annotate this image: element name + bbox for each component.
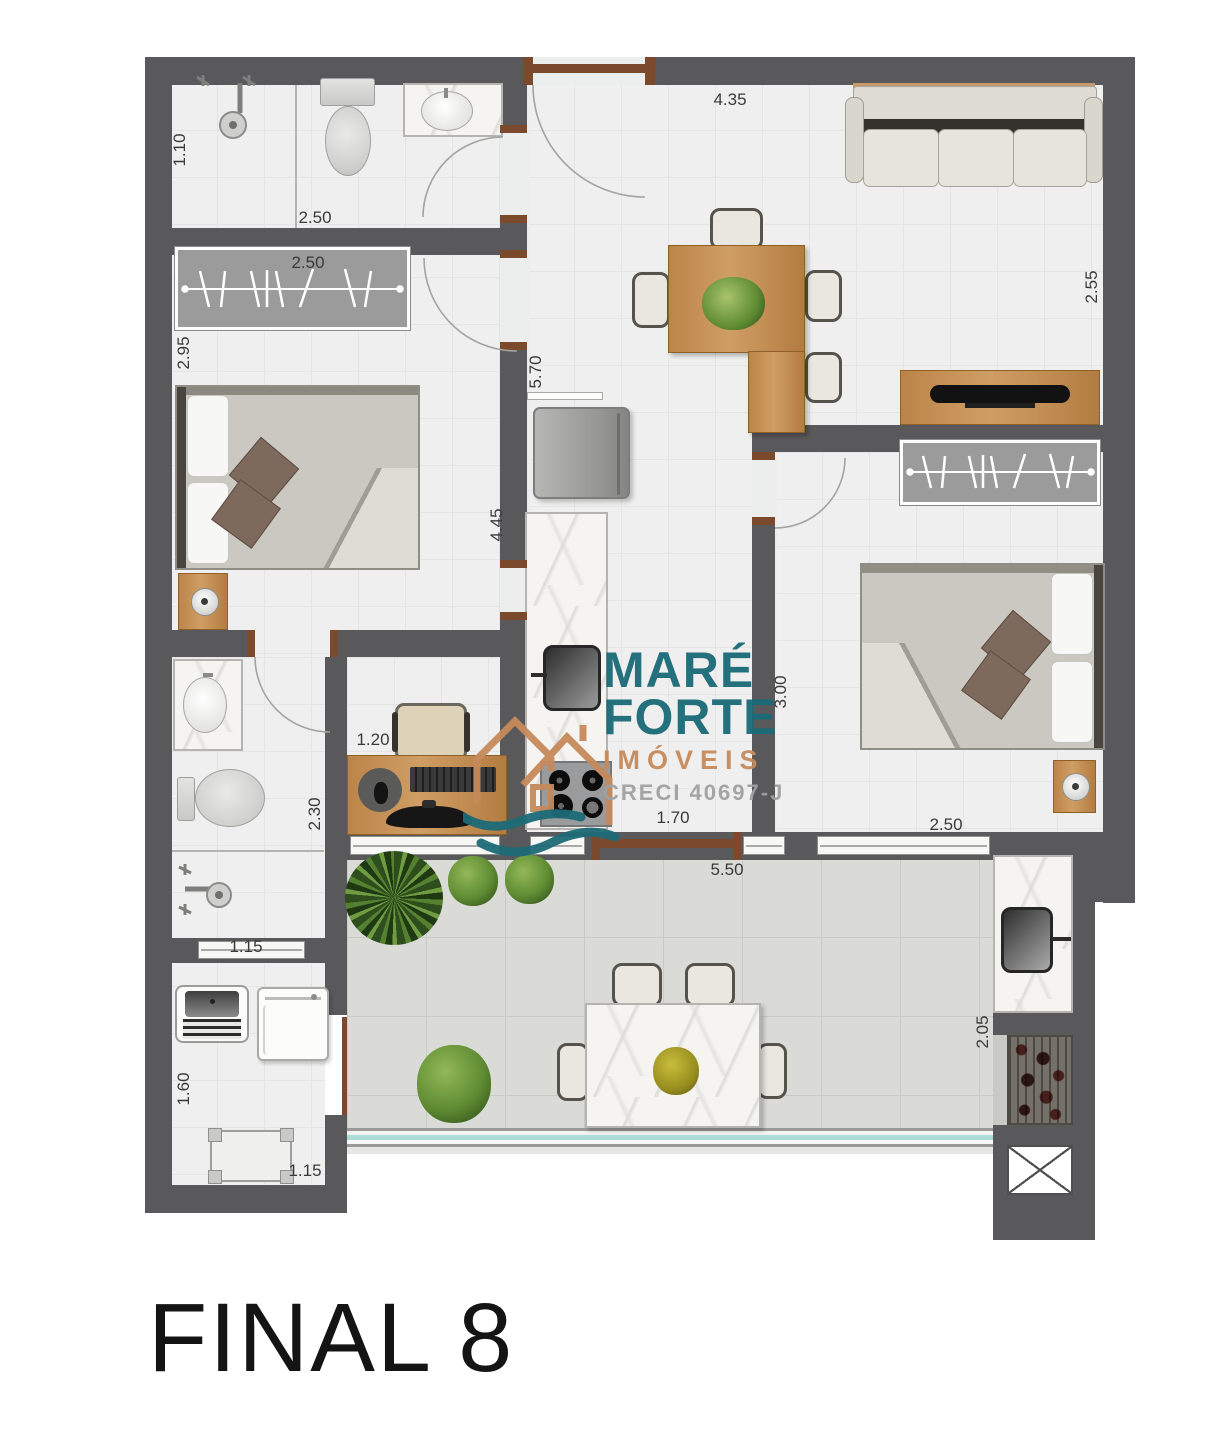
dimension-label: 2.55 [1082, 270, 1102, 303]
dimension-label: 2.95 [174, 336, 194, 369]
dimension-label: 1.10 [170, 133, 190, 166]
dimension-label: 5.50 [710, 860, 743, 880]
dimension-label: 3.00 [771, 675, 791, 708]
dimension-label: 4.45 [487, 508, 507, 541]
dimension-label: 1.60 [174, 1072, 194, 1105]
dimension-label: 4.35 [713, 90, 746, 110]
floor-plan: 1.102.502.502.954.352.555.704.453.001.20… [145, 55, 1135, 1240]
dimension-label: 1.70 [656, 808, 689, 828]
dimension-label: 1.15 [229, 937, 262, 957]
dimension-label: 1.20 [356, 730, 389, 750]
dimension-label: 2.05 [973, 1015, 993, 1048]
dimension-label: 1.15 [288, 1161, 321, 1181]
dimension-labels-layer: 1.102.502.502.954.352.555.704.453.001.20… [145, 55, 1135, 1240]
dimension-label: 2.50 [298, 208, 331, 228]
dimension-label: 2.50 [291, 253, 324, 273]
floorplan-page: { "title": "FINAL 8", "watermark": { "na… [0, 0, 1230, 1432]
unit-title: FINAL 8 [148, 1282, 514, 1394]
dimension-label: 5.70 [526, 355, 546, 388]
dimension-label: 2.30 [305, 797, 325, 830]
dimension-label: 2.50 [929, 815, 962, 835]
